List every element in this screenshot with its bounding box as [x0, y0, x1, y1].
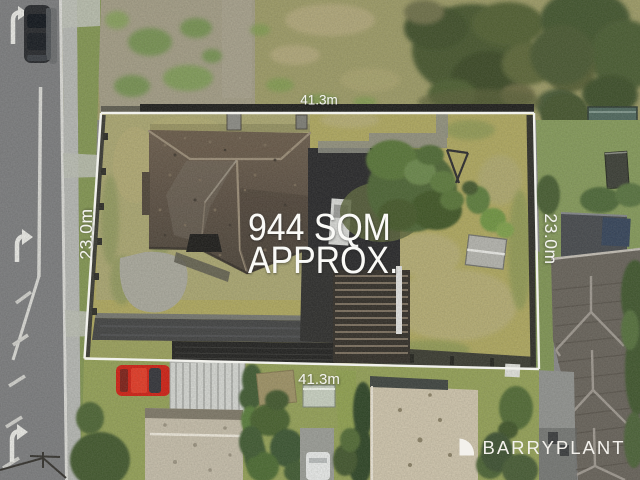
- svg-text:BARRYPLANT: BARRYPLANT: [483, 437, 626, 458]
- svg-text:23.0m: 23.0m: [541, 213, 561, 264]
- svg-text:23.0m: 23.0m: [76, 208, 96, 259]
- svg-text:41.3m: 41.3m: [298, 371, 340, 388]
- svg-text:41.3m: 41.3m: [300, 93, 338, 108]
- svg-text:APPROX.: APPROX.: [248, 238, 398, 281]
